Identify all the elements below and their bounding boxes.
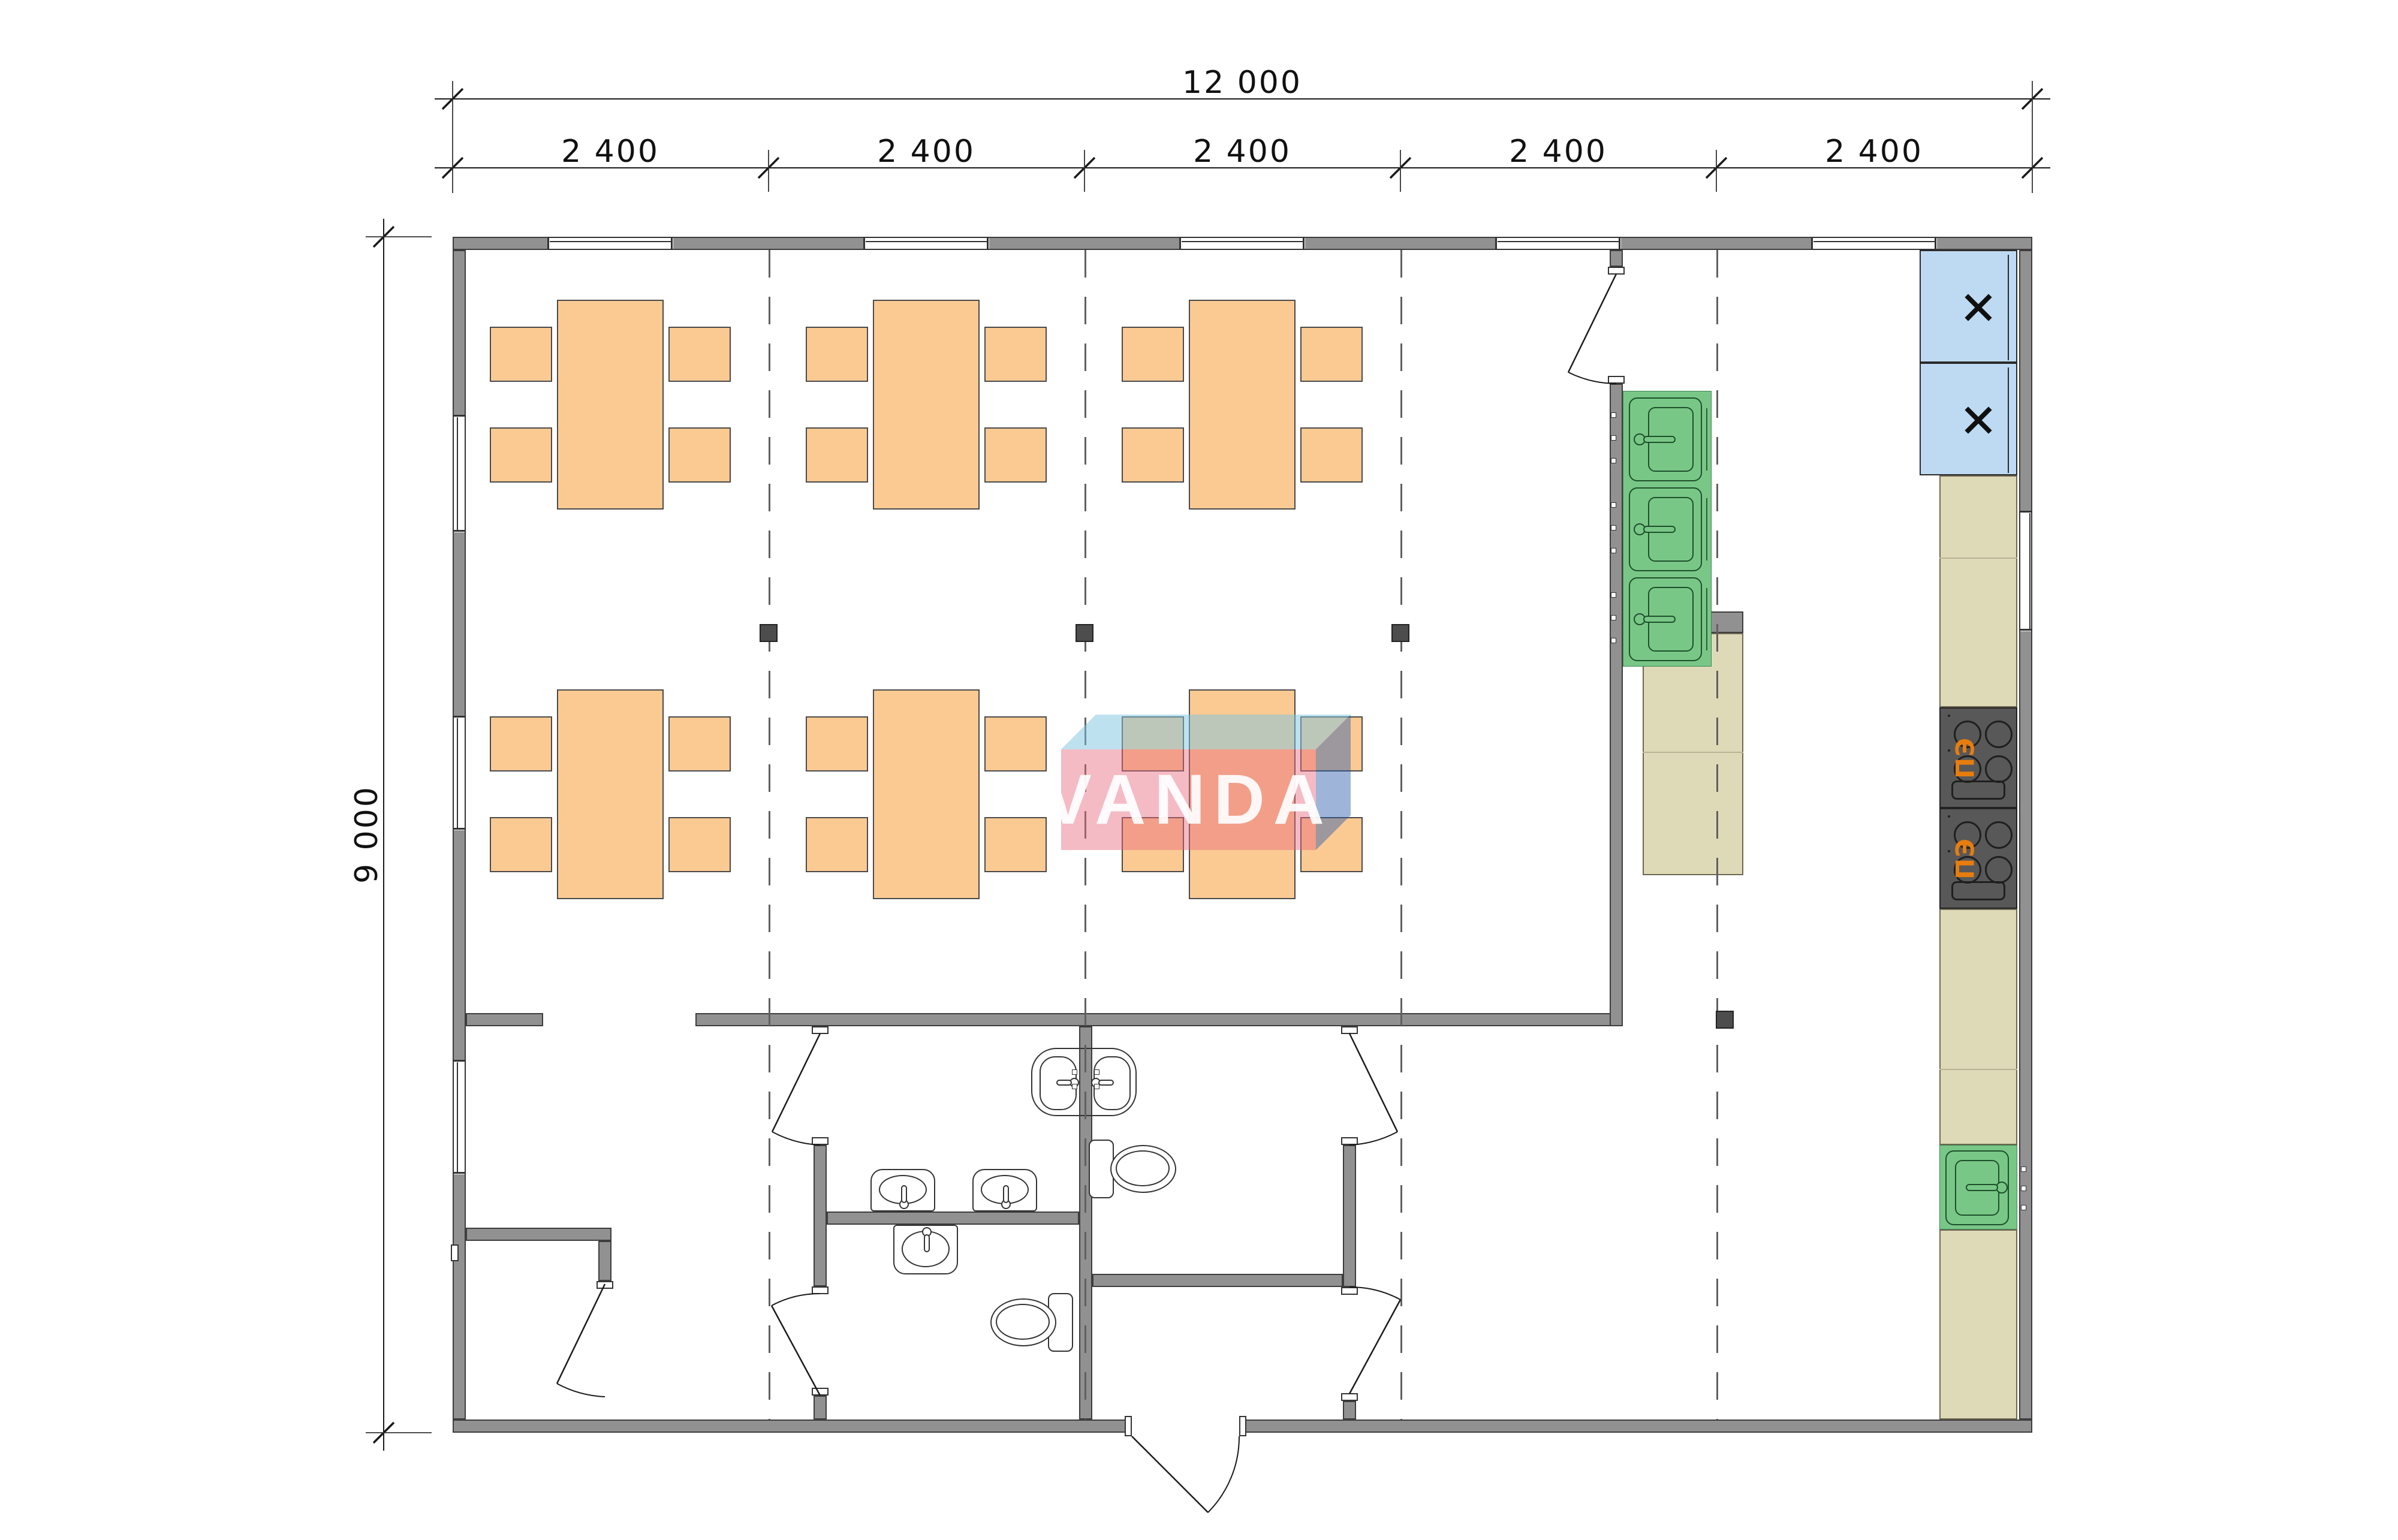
- vestibule-door-swing: [1349, 1287, 1400, 1300]
- floor-plan-canvas: 12 0002 4002 4002 4002 4002 4009 000ПЭПЭ…: [0, 0, 2398, 1540]
- entrance-door-swing: [1208, 1436, 1239, 1512]
- stove-label: ПЭ: [1951, 837, 1980, 879]
- watermark-front-face: VANDA: [1061, 749, 1316, 850]
- kitchen-door-swing: [1568, 372, 1616, 384]
- wc-left-upper-door-swing: [772, 1132, 820, 1145]
- storage-door-leaf: [557, 1284, 605, 1384]
- entrance-door-leaf: [1132, 1436, 1208, 1512]
- wc-left-lower-door-leaf: [772, 1306, 820, 1396]
- stove-label: ПЭ: [1951, 737, 1980, 779]
- dim-label-module: 2 400: [877, 134, 975, 170]
- wc-right-upper-door-leaf: [1349, 1033, 1397, 1132]
- vestibule-door-leaf: [1349, 1300, 1400, 1394]
- watermark-top-face: [1061, 715, 1351, 749]
- dim-label-overall-width: 12 000: [1182, 65, 1302, 101]
- dim-label-overall-height: 9 000: [349, 785, 385, 884]
- vanda-watermark: VANDA: [1061, 715, 1351, 850]
- dim-label-module: 2 400: [1193, 134, 1291, 170]
- storage-door-swing: [557, 1384, 605, 1397]
- watermark-text: VANDA: [1044, 759, 1333, 840]
- dim-label-module: 2 400: [1825, 134, 1923, 170]
- dim-label-module: 2 400: [561, 134, 659, 170]
- wc-right-upper-door-swing: [1349, 1132, 1397, 1145]
- dim-label-module: 2 400: [1509, 134, 1607, 170]
- kitchen-door-leaf: [1568, 274, 1616, 372]
- wc-left-lower-door-swing: [772, 1294, 820, 1306]
- wc-left-upper-door-leaf: [772, 1033, 820, 1132]
